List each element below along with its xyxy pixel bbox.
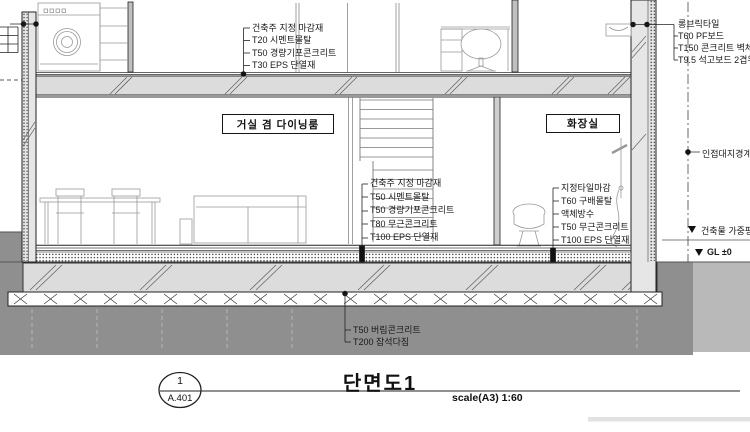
drawing-scale: scale(A3) 1:60 (452, 392, 523, 404)
callout-line: 건축주 지정 마감재 (370, 177, 454, 190)
callout-bath-floor: 지정타일마감 T60 구배몰탈 액체방수 T50 무근콘크리트 T100 EPS… (561, 182, 629, 247)
callout-line: T50 무근콘크리트 (561, 221, 629, 234)
leader-bath-floor (551, 188, 560, 262)
room-label-bathroom: 화장실 (546, 114, 620, 133)
callout-line: T80 무근콘크리트 (370, 218, 454, 231)
callout-line: T200 잡석다짐 (353, 336, 421, 348)
callout-line: T20 시멘트몰탈 (252, 34, 336, 47)
desk-chair (461, 29, 501, 71)
drawing-title: 단면도1 (320, 367, 440, 396)
callout-line: T100 EPS 단열재 (561, 234, 629, 247)
callout-line: T50 시멘트몰탈 (370, 191, 454, 204)
avg-ground-triangle-icon (688, 226, 696, 233)
sheet-ref-code: A.401 (158, 393, 202, 404)
washing-machine (38, 3, 100, 71)
callout-exterior-wall: 롱브릭타일 T60 PF보드 T150 콘크리트 벽체 T9.5 석고보드 2겹… (678, 18, 750, 66)
exterior-wall-right (631, 0, 656, 292)
washbasin (606, 24, 631, 36)
title-block-linework (159, 373, 740, 408)
room-label-living: 거실 겸 다이닝룸 (222, 114, 334, 134)
leader-roof-floor (241, 28, 250, 76)
scan-artifact (588, 417, 750, 422)
exterior-wall-left (22, 12, 36, 262)
room-label-living-text: 거실 겸 다이닝룸 (237, 117, 319, 132)
avg-ground-label: 건축물 가중평균 (701, 224, 750, 237)
ground-level-label: GL ±0 (707, 247, 732, 257)
callout-gf-floor: 건축주 지정 마감재 T50 시멘트몰탈 T50 경량기포콘크리트 T80 무근… (370, 177, 454, 244)
toilet (513, 204, 545, 246)
callout-line: T60 구배몰탈 (561, 195, 629, 208)
dining-chair (56, 189, 84, 244)
side-table (180, 219, 192, 244)
sofa (194, 196, 306, 243)
callout-foundation: T50 버림콘크리트 T200 잡석다짐 (353, 324, 421, 348)
shelf-unit (100, 3, 128, 71)
callout-line: T50 경량기포콘크리트 (252, 47, 336, 60)
callout-line: 지정타일마감 (561, 182, 629, 195)
callout-line: T100 EPS 단열재 (370, 231, 454, 244)
room-label-bathroom-text: 화장실 (567, 116, 599, 131)
callout-line: T60 PF보드 (678, 30, 750, 42)
callout-line: 롱브릭타일 (678, 18, 750, 30)
callout-line: T150 콘크리트 벽체 (678, 42, 750, 54)
callout-roof-floor: 건축주 지정 마감재 T20 시멘트몰탈 T50 경량기포콘크리트 T30 EP… (252, 22, 336, 72)
site-boundary-label: 인접대지경계선 (702, 147, 750, 160)
gl-triangle-icon (695, 249, 703, 256)
first-floor-furniture (40, 138, 627, 247)
callout-line: 액체방수 (561, 208, 629, 221)
callout-line: T50 버림콘크리트 (353, 324, 421, 336)
callout-line: 건축주 지정 마감재 (252, 22, 336, 35)
interior-wall-2f-left (128, 2, 133, 72)
section-drawing-sheet: 거실 겸 다이닝룸 화장실 건축주 지정 마감재 T20 시멘트몰탈 T50 경… (0, 0, 750, 432)
interior-wall-2f-right (512, 0, 518, 72)
callout-line: T30 EPS 단열재 (252, 59, 336, 72)
callout-line: T50 경량기포콘크리트 (370, 204, 454, 217)
callout-line: T9.5 석고보드 2겹위 지정 (678, 54, 750, 66)
floor-layers (36, 245, 631, 262)
second-floor-slab (36, 73, 631, 98)
sheet-ref-number: 1 (158, 375, 202, 387)
interior-wall-bathroom (494, 97, 500, 245)
dining-chair (112, 189, 140, 244)
